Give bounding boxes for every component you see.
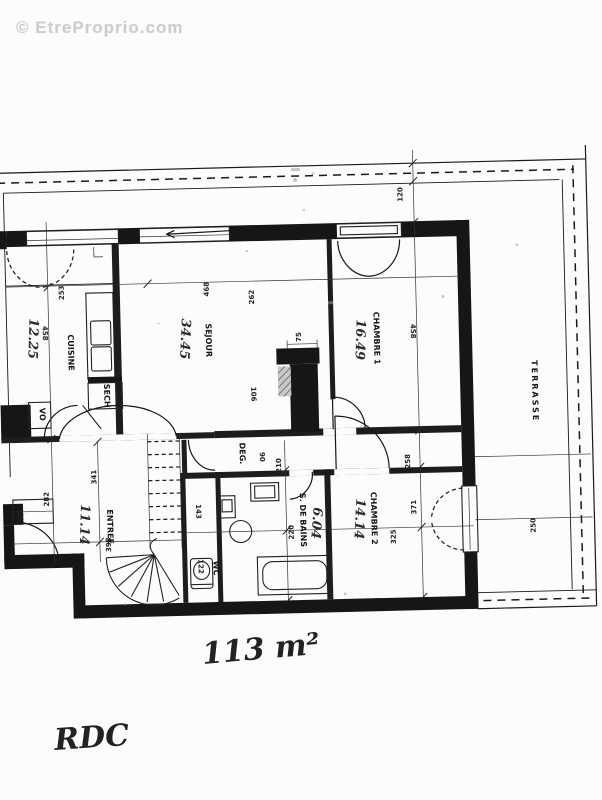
label-sech: SECH — [102, 384, 112, 408]
dim-90: 90 — [258, 452, 266, 462]
chimney — [276, 340, 321, 433]
dim-143: 143 — [194, 504, 202, 519]
label-entree: ENTREE — [105, 509, 115, 544]
dim-458-cuisine: 458 — [41, 326, 49, 341]
area-entree: 11.14 — [76, 504, 92, 545]
chambre1-window — [336, 222, 401, 238]
dim-371: 371 — [410, 500, 418, 515]
chambre2-door — [335, 415, 389, 469]
label-s-de-bains: S. DE BAINS — [298, 493, 308, 548]
label-vo: VO — [38, 408, 47, 421]
area-cuisine: 12.25 — [24, 318, 40, 359]
dim-325: 325 — [390, 529, 398, 544]
dim-106: 106 — [249, 387, 257, 402]
bathtub — [257, 555, 332, 595]
terrace-door-leaves — [431, 488, 465, 551]
entree-deg-door — [188, 439, 215, 471]
dim-468: 468 — [203, 282, 211, 297]
chambre1-door — [332, 396, 365, 429]
area-bains: 6.04 — [307, 507, 324, 540]
deg-washbasin — [219, 496, 236, 518]
dim-120: 120 — [396, 187, 404, 202]
label-chambre1: CHAMBRE 1 — [371, 312, 381, 365]
dim-55: 55 — [17, 512, 25, 522]
floor-label-handwriting: RDC — [52, 718, 130, 758]
label-cuisine: CUISINE — [66, 334, 76, 370]
dim-210: 210 — [275, 458, 283, 473]
label-chambre2: CHAMBRE 2 — [369, 492, 379, 545]
dim-262: 262 — [248, 290, 256, 305]
dim-253: 253 — [58, 285, 66, 300]
dim-220: 220 — [288, 525, 296, 540]
chambre2-terrace-door-window — [462, 486, 479, 552]
label-sejour: SEJOUR — [204, 323, 214, 357]
area-chambre2: 14.14 — [350, 498, 367, 539]
scanned-floor-plan-page: © EtreProprio.com — [0, 0, 602, 800]
dim-122: 122 — [196, 559, 204, 574]
sejour-window — [139, 227, 229, 243]
total-area-handwriting: 113 m² — [201, 627, 322, 672]
dim-282: 282 — [43, 492, 51, 507]
label-deg: DEG. — [238, 442, 248, 464]
dim-258: 258 — [404, 454, 412, 469]
dim-75: 75 — [295, 332, 303, 342]
dim-341: 341 — [90, 470, 98, 485]
floor-plan-svg: 120 253 458 468 262 75 458 106 90 210 34… — [0, 0, 602, 800]
chambre1-window-doors — [338, 240, 401, 278]
label-wc: WC — [211, 561, 220, 576]
dim-250-terrasse: 250 — [529, 518, 537, 533]
loggia-double-door — [7, 249, 75, 288]
area-sejour: 34.45 — [176, 318, 193, 359]
area-chambre1: 16.49 — [351, 319, 367, 360]
label-terrasse: TERRASSE — [530, 360, 541, 422]
bains-vanity — [251, 483, 279, 502]
page-annotations: 113 m² RDC — [52, 627, 321, 758]
kitchen-loggia-window — [26, 229, 118, 245]
dim-458-chambre1: 458 — [409, 324, 417, 339]
